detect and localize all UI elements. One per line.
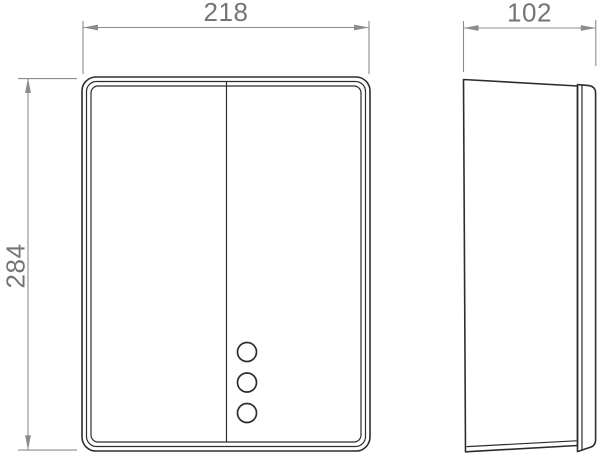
side-view xyxy=(464,80,596,452)
dimension-depth: 102 xyxy=(464,0,596,72)
depth-dim-label: 102 xyxy=(507,0,552,28)
depth-arrow-left-icon xyxy=(464,25,479,31)
button-circle-top xyxy=(238,343,257,362)
button-circle-middle xyxy=(238,373,257,392)
depth-arrow-right-icon xyxy=(581,25,596,31)
drawing-canvas: 218 102 284 xyxy=(0,0,600,455)
height-arrow-bottom-icon xyxy=(25,435,31,450)
technical-drawing: 218 102 284 xyxy=(0,0,600,455)
width-dim-label: 218 xyxy=(204,0,249,27)
dimension-height: 284 xyxy=(1,78,78,450)
width-arrow-left-icon xyxy=(83,25,98,31)
side-backplate-outline xyxy=(578,85,596,452)
height-arrow-top-icon xyxy=(25,78,31,93)
dimension-width: 218 xyxy=(83,0,369,74)
height-dim-label: 284 xyxy=(1,244,31,289)
width-arrow-right-icon xyxy=(354,25,369,31)
side-body-outline xyxy=(464,80,578,452)
front-view xyxy=(82,77,370,451)
button-circle-bottom xyxy=(238,404,257,423)
